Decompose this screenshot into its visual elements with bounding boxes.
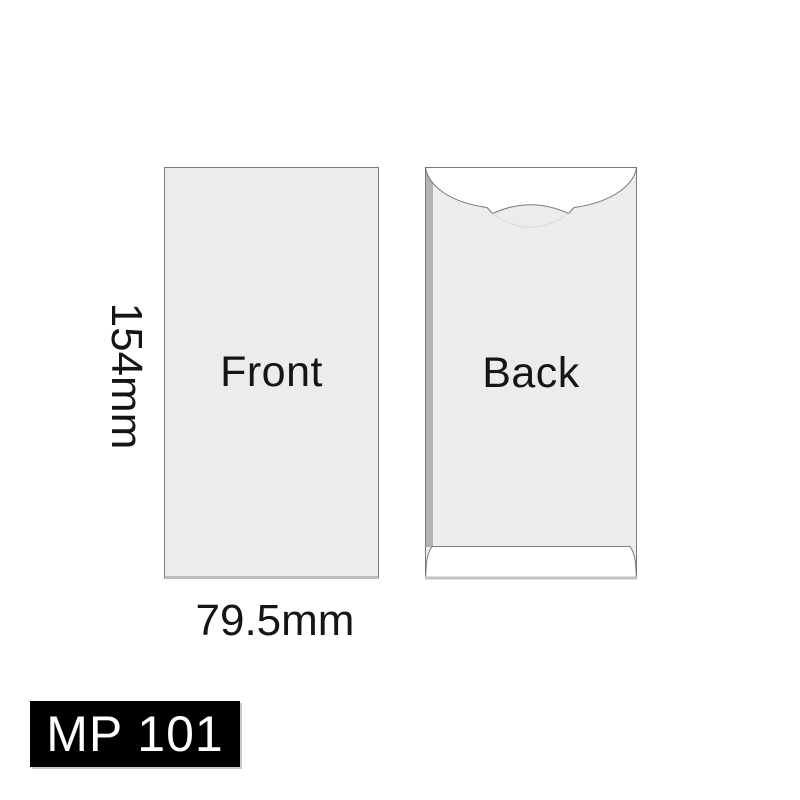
envelope-bottom-shadow [425,577,637,580]
front-panel: Front [164,167,379,579]
back-envelope-drawing [425,167,637,581]
front-panel-label: Front [220,351,323,394]
envelope-body [426,168,637,579]
width-dimension-label: 79.5mm [175,598,375,644]
envelope-bottom-flap [426,547,637,579]
height-dimension-label: 154mm [103,291,149,461]
model-badge-label: MP 101 [46,709,223,759]
back-panel: Back [425,167,637,581]
model-badge: MP 101 [30,701,240,767]
envelope-seam [426,168,433,547]
diagram-canvas: Front 154mm 79.5mm Back MP 101 [0,0,800,800]
